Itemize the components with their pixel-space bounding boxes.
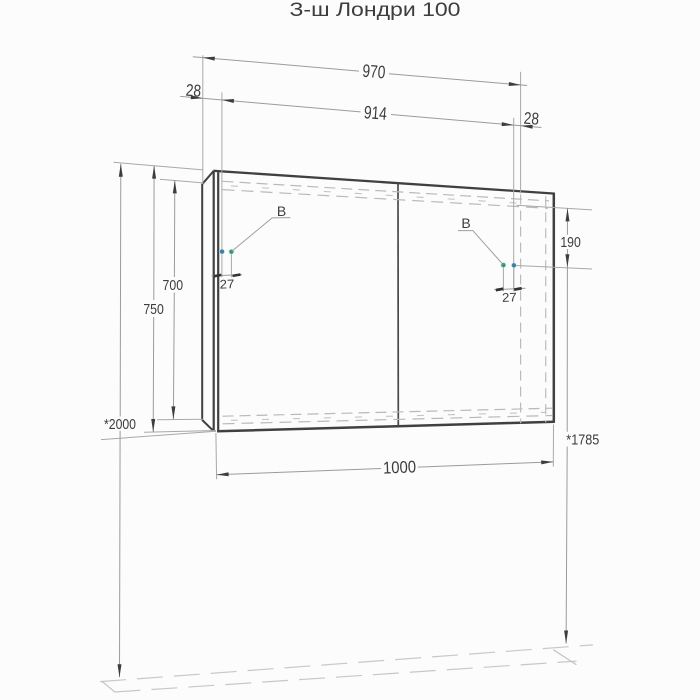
svg-text:190: 190 — [560, 234, 581, 251]
svg-text:914: 914 — [363, 102, 387, 124]
svg-text:700: 700 — [163, 277, 184, 294]
svg-text:970: 970 — [362, 61, 386, 83]
svg-text:B: B — [461, 215, 470, 231]
svg-text:28: 28 — [523, 109, 540, 129]
svg-text:27: 27 — [502, 290, 517, 305]
svg-text:750: 750 — [143, 301, 164, 318]
svg-text:*2000: *2000 — [104, 416, 136, 433]
svg-text:З-ш Лондри 100: З-ш Лондри 100 — [290, 0, 461, 21]
svg-text:1000: 1000 — [383, 457, 417, 477]
svg-text:*1785: *1785 — [566, 431, 599, 448]
svg-text:B: B — [277, 203, 286, 219]
svg-text:27: 27 — [219, 277, 234, 292]
svg-text:28: 28 — [185, 81, 202, 101]
